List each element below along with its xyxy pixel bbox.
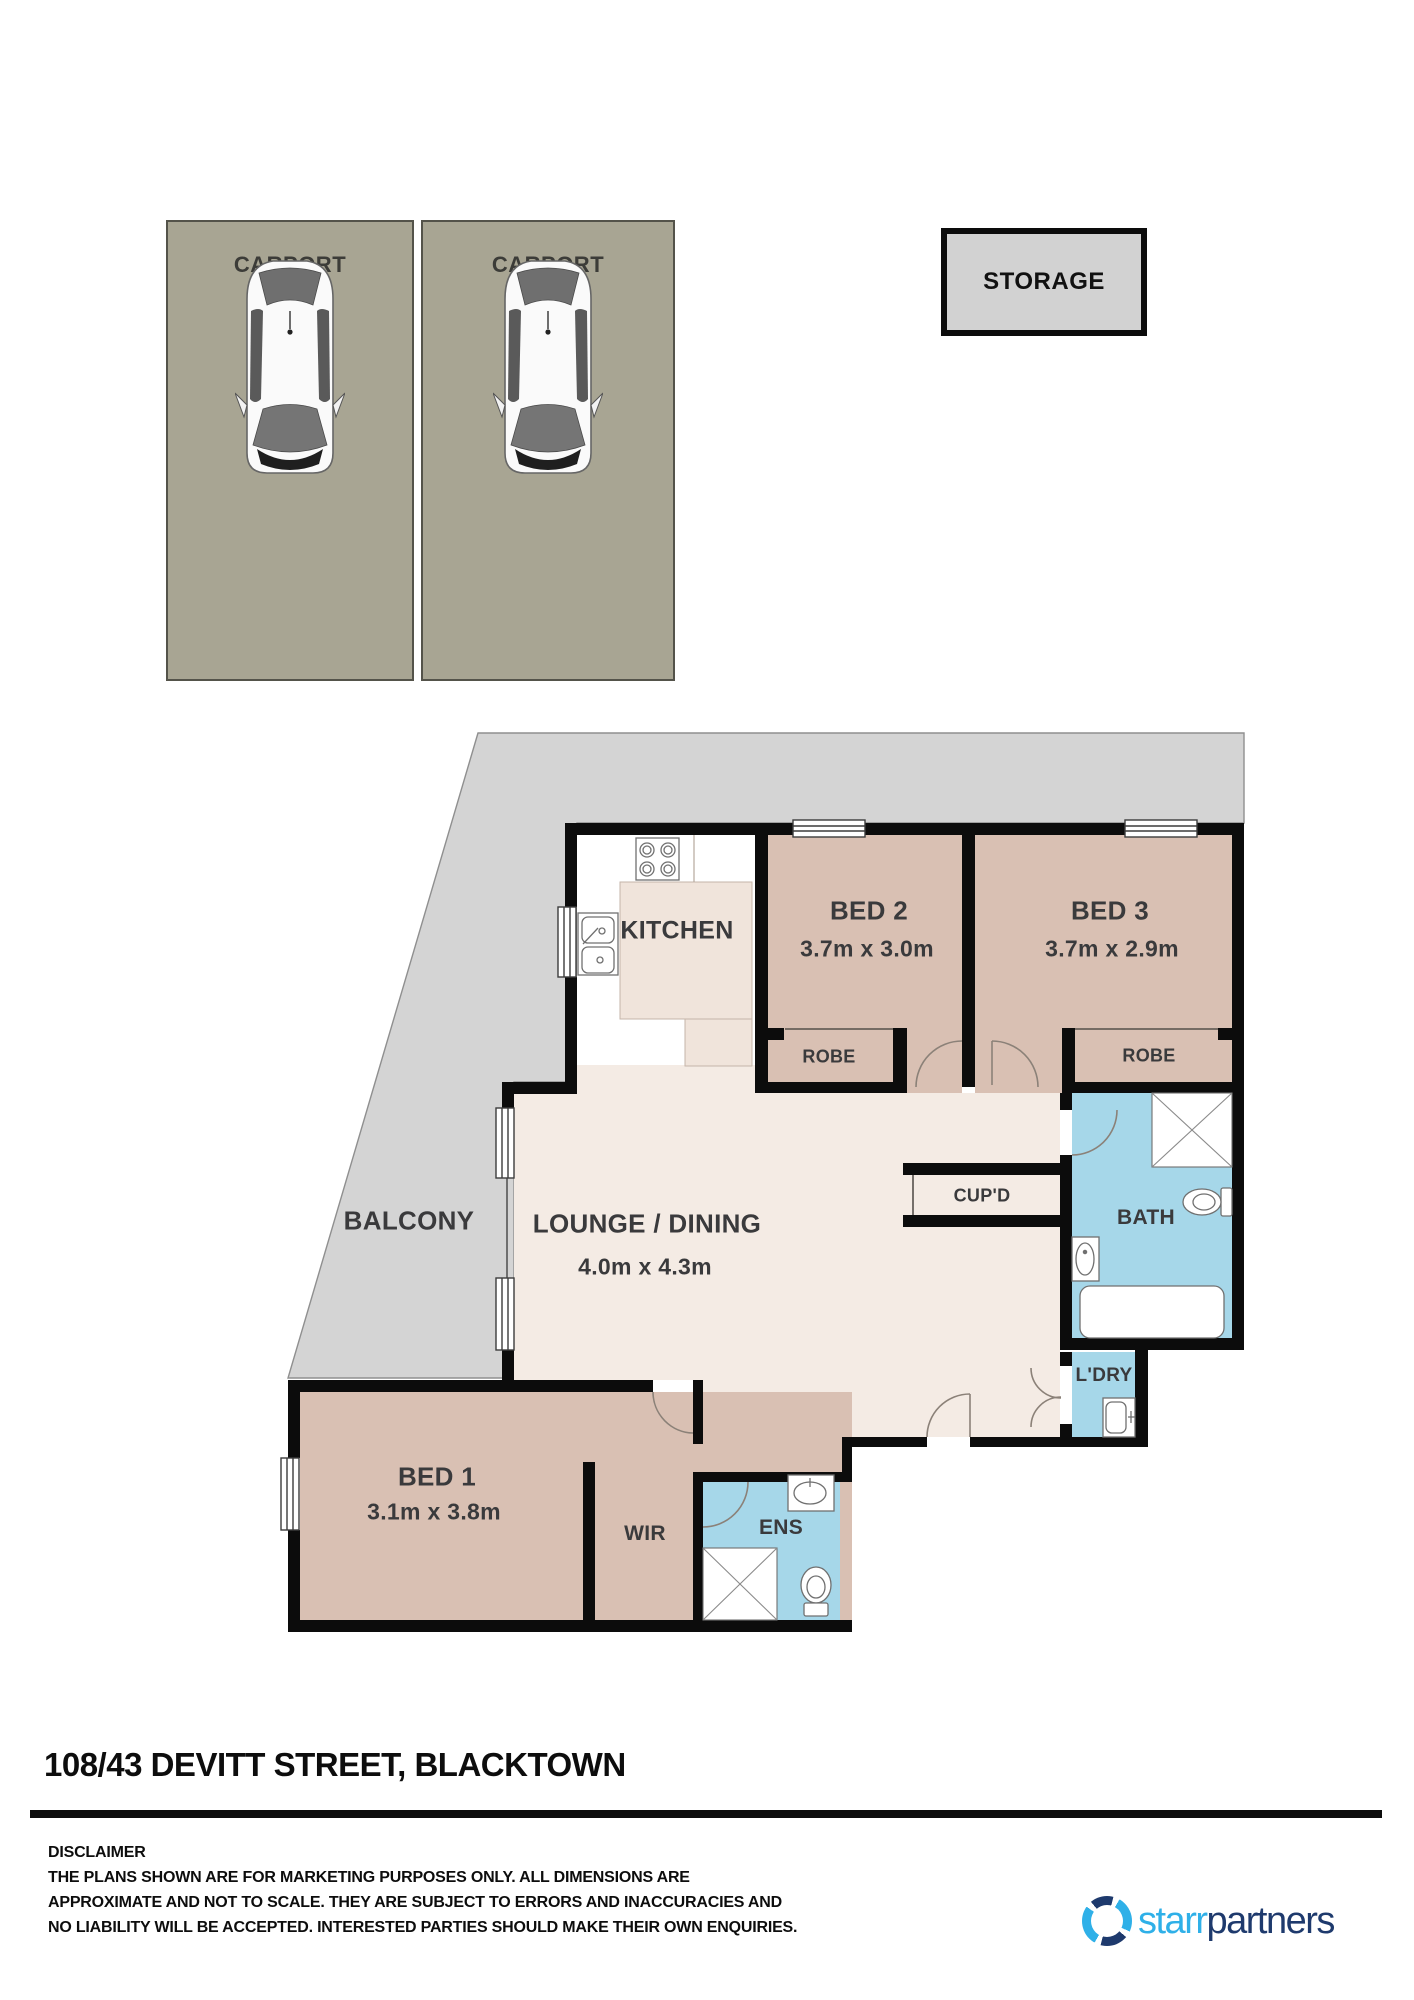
bed3-window-icon	[1125, 820, 1197, 837]
floorplan-page: CARPORT CARPORT STORAGE	[0, 0, 1414, 2000]
bathtub-icon	[1080, 1286, 1224, 1338]
bed2-window-icon	[793, 820, 865, 837]
laundry-label: L'DRY	[1075, 1365, 1132, 1387]
ens-shower-icon	[703, 1548, 777, 1620]
logo-word-starr: starr	[1138, 1900, 1207, 1942]
bed2-dimensions: 3.7m x 3.0m	[800, 936, 934, 963]
bath-label: BATH	[1117, 1206, 1175, 1230]
starr-partners-logo: starrpartners	[1082, 1896, 1334, 1946]
bath-shower-icon	[1152, 1093, 1232, 1167]
bed2-label: BED 2	[830, 896, 908, 927]
lounge-window-2-icon	[496, 1278, 514, 1350]
balcony-label: BALCONY	[344, 1206, 475, 1237]
wir-label: WIR	[624, 1522, 666, 1546]
divider-rule	[30, 1810, 1382, 1818]
page-title: 108/43 DEVITT STREET, BLACKTOWN	[44, 1746, 626, 1784]
disclaimer-line-3: NO LIABILITY WILL BE ACCEPTED. INTERESTE…	[48, 1915, 797, 1940]
disclaimer-line-1: THE PLANS SHOWN ARE FOR MARKETING PURPOS…	[48, 1865, 797, 1890]
disclaimer-heading: DISCLAIMER	[48, 1840, 797, 1865]
ens-basin-icon	[788, 1475, 834, 1511]
bath-basin-icon	[1072, 1237, 1099, 1281]
cupboard-label: CUP'D	[954, 1186, 1011, 1207]
floorplan-drawing	[0, 0, 1414, 2000]
bed3-label: BED 3	[1071, 896, 1149, 927]
washing-machine-icon	[1103, 1398, 1135, 1437]
lounge-window-1-icon	[496, 1108, 514, 1178]
kitchen-window-icon	[558, 907, 576, 977]
bed3-robe-label: ROBE	[1122, 1046, 1175, 1067]
ens-toilet-icon	[801, 1567, 831, 1616]
bed1-window-icon	[281, 1458, 299, 1530]
kitchen-label: KITCHEN	[620, 917, 733, 946]
lounge-dimensions: 4.0m x 4.3m	[578, 1254, 712, 1281]
disclaimer-line-2: APPROXIMATE AND NOT TO SCALE. THEY ARE S…	[48, 1890, 797, 1915]
bath-toilet-icon	[1183, 1188, 1232, 1216]
bed3-dimensions: 3.7m x 2.9m	[1045, 936, 1179, 963]
starr-partners-logo-icon	[1082, 1896, 1132, 1946]
ensuite-label: ENS	[759, 1516, 803, 1540]
disclaimer-block: DISCLAIMER THE PLANS SHOWN ARE FOR MARKE…	[48, 1840, 797, 1940]
bed1-label: BED 1	[398, 1462, 476, 1493]
stove-icon	[636, 838, 679, 880]
logo-word-partners: partners	[1207, 1900, 1334, 1942]
starr-partners-logo-text: starrpartners	[1138, 1896, 1334, 1946]
bed2-robe-label: ROBE	[802, 1047, 855, 1068]
lounge-label: LOUNGE / DINING	[533, 1209, 761, 1240]
bed1-dimensions: 3.1m x 3.8m	[367, 1499, 501, 1526]
kitchen-sink-icon	[578, 913, 618, 975]
